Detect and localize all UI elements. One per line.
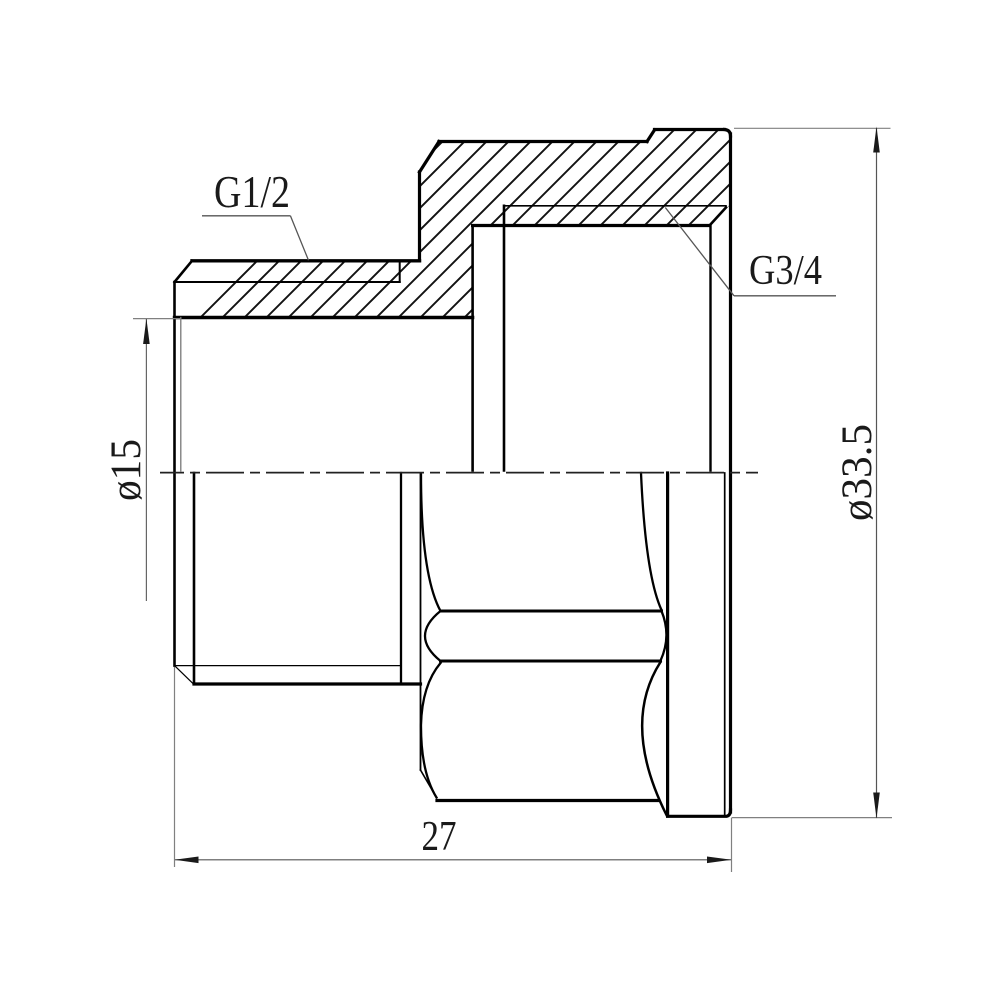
svg-text:ø33.5: ø33.5 [834, 424, 881, 521]
svg-text:G3/4: G3/4 [749, 248, 822, 294]
svg-text:G1/2: G1/2 [214, 166, 290, 217]
svg-text:27: 27 [422, 814, 457, 860]
svg-text:ø15: ø15 [103, 439, 150, 501]
